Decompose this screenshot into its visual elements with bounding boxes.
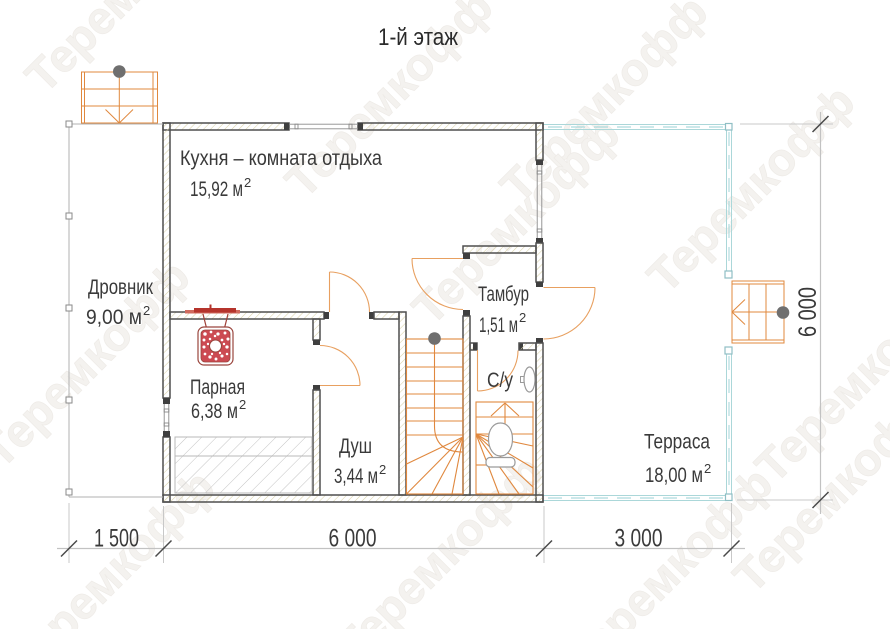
svg-text:Душ: Душ xyxy=(339,435,372,458)
svg-text:С/у: С/у xyxy=(487,369,513,392)
svg-text:2: 2 xyxy=(143,303,150,318)
svg-text:6 000: 6 000 xyxy=(794,287,822,337)
svg-text:2: 2 xyxy=(519,310,526,325)
svg-text:6 000: 6 000 xyxy=(329,525,377,553)
svg-text:3 000: 3 000 xyxy=(615,525,663,553)
svg-text:1-й этаж: 1-й этаж xyxy=(378,24,458,51)
svg-text:2: 2 xyxy=(239,397,246,412)
svg-text:2: 2 xyxy=(704,461,711,476)
svg-text:18,00 м: 18,00 м xyxy=(645,464,703,487)
svg-text:Дровник: Дровник xyxy=(88,276,154,299)
svg-text:1 500: 1 500 xyxy=(94,525,139,553)
svg-text:Тамбур: Тамбур xyxy=(478,283,529,306)
svg-text:9,00 м: 9,00 м xyxy=(86,306,142,329)
svg-text:3,44 м: 3,44 м xyxy=(334,465,378,488)
svg-text:2: 2 xyxy=(244,175,251,190)
svg-text:Терраса: Терраса xyxy=(644,431,710,454)
svg-text:2: 2 xyxy=(379,462,386,477)
svg-text:6,38 м: 6,38 м xyxy=(191,400,238,423)
svg-text:Парная: Парная xyxy=(190,376,245,399)
svg-text:15,92 м: 15,92 м xyxy=(190,178,243,201)
svg-text:Кухня – комната отдыха: Кухня – комната отдыха xyxy=(180,147,382,170)
svg-text:1,51 м: 1,51 м xyxy=(479,314,518,337)
